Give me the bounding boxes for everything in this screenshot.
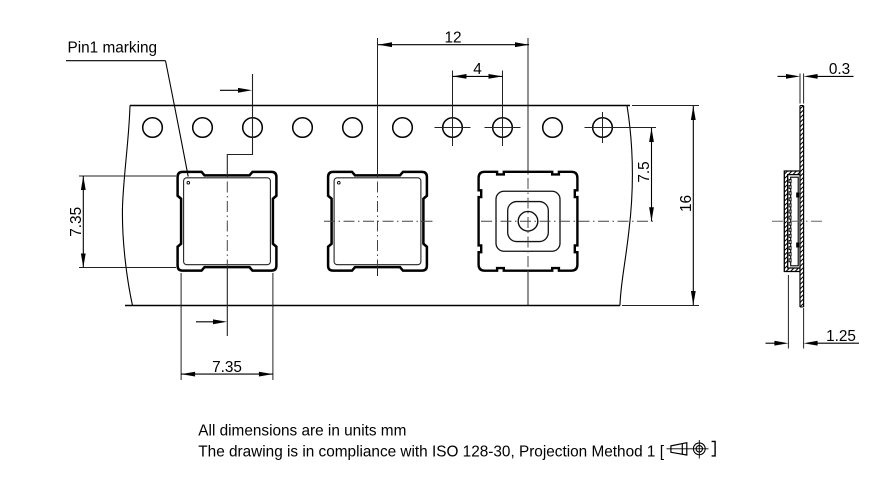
svg-text:The drawing is in compliance w: The drawing is in compliance with ISO 12… <box>198 444 664 461</box>
svg-text:1.25: 1.25 <box>826 328 856 345</box>
svg-text:Pin1 marking: Pin1 marking <box>68 40 158 57</box>
svg-text:7.35: 7.35 <box>212 359 242 376</box>
svg-text:12: 12 <box>444 29 461 46</box>
svg-text:7.5: 7.5 <box>636 161 653 182</box>
svg-text:0.3: 0.3 <box>829 61 850 78</box>
svg-text:4: 4 <box>473 61 482 78</box>
svg-text:16: 16 <box>678 195 695 212</box>
svg-text:7.35: 7.35 <box>68 207 85 237</box>
svg-text:All dimensions are in units mm: All dimensions are in units mm <box>198 422 406 439</box>
